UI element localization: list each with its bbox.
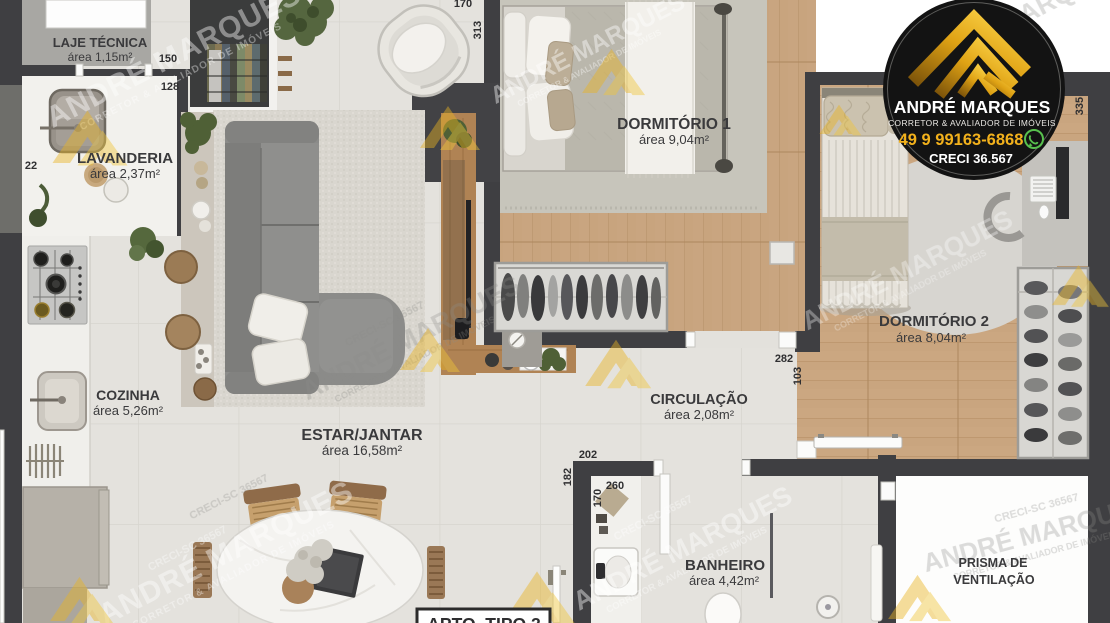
svg-text:área 16,58m²: área 16,58m²: [322, 443, 403, 458]
svg-text:CORRETOR & AVALIADOR DE IMÓVEI: CORRETOR & AVALIADOR DE IMÓVEIS: [888, 118, 1056, 128]
svg-text:DORMITÓRIO 2: DORMITÓRIO 2: [879, 312, 989, 330]
svg-text:182: 182: [562, 468, 574, 486]
svg-text:49 9 99163-6868: 49 9 99163-6868: [899, 131, 1024, 149]
svg-text:área 1,15m²: área 1,15m²: [68, 50, 133, 64]
svg-text:103: 103: [792, 367, 804, 385]
svg-text:ANDRÉ MARQUES: ANDRÉ MARQUES: [894, 96, 1051, 117]
svg-text:VENTILAÇÃO: VENTILAÇÃO: [953, 572, 1035, 587]
svg-text:PRISMA DE: PRISMA DE: [959, 556, 1028, 570]
svg-text:DORMITÓRIO 1: DORMITÓRIO 1: [617, 115, 731, 133]
svg-text:170: 170: [592, 489, 604, 507]
svg-text:área 9,04m²: área 9,04m²: [639, 132, 710, 147]
svg-text:COZINHA: COZINHA: [96, 387, 160, 403]
svg-text:área 2,08m²: área 2,08m²: [664, 407, 735, 422]
svg-text:335: 335: [1074, 97, 1086, 115]
svg-text:202: 202: [579, 449, 597, 461]
svg-text:área 8,04m²: área 8,04m²: [896, 330, 967, 345]
svg-text:CIRCULAÇÃO: CIRCULAÇÃO: [650, 390, 747, 408]
svg-text:150: 150: [159, 53, 177, 65]
svg-text:128: 128: [161, 81, 179, 93]
svg-text:22: 22: [25, 160, 37, 172]
svg-text:LAJE TÉCNICA: LAJE TÉCNICA: [53, 35, 148, 50]
svg-text:APTO. TIPO 2: APTO. TIPO 2: [427, 614, 541, 623]
svg-text:170: 170: [454, 0, 472, 10]
svg-text:260: 260: [606, 480, 624, 492]
svg-text:ESTAR/JANTAR: ESTAR/JANTAR: [301, 427, 423, 444]
svg-text:LAVANDERIA: LAVANDERIA: [77, 150, 173, 167]
svg-text:área 4,42m²: área 4,42m²: [689, 573, 760, 588]
svg-text:área 2,37m²: área 2,37m²: [90, 166, 161, 181]
svg-text:282: 282: [775, 353, 793, 365]
svg-text:313: 313: [472, 21, 484, 39]
svg-text:área 5,26m²: área 5,26m²: [93, 403, 164, 418]
svg-text:CRECI 36.567: CRECI 36.567: [929, 151, 1013, 166]
svg-text:BANHEIRO: BANHEIRO: [685, 557, 765, 574]
